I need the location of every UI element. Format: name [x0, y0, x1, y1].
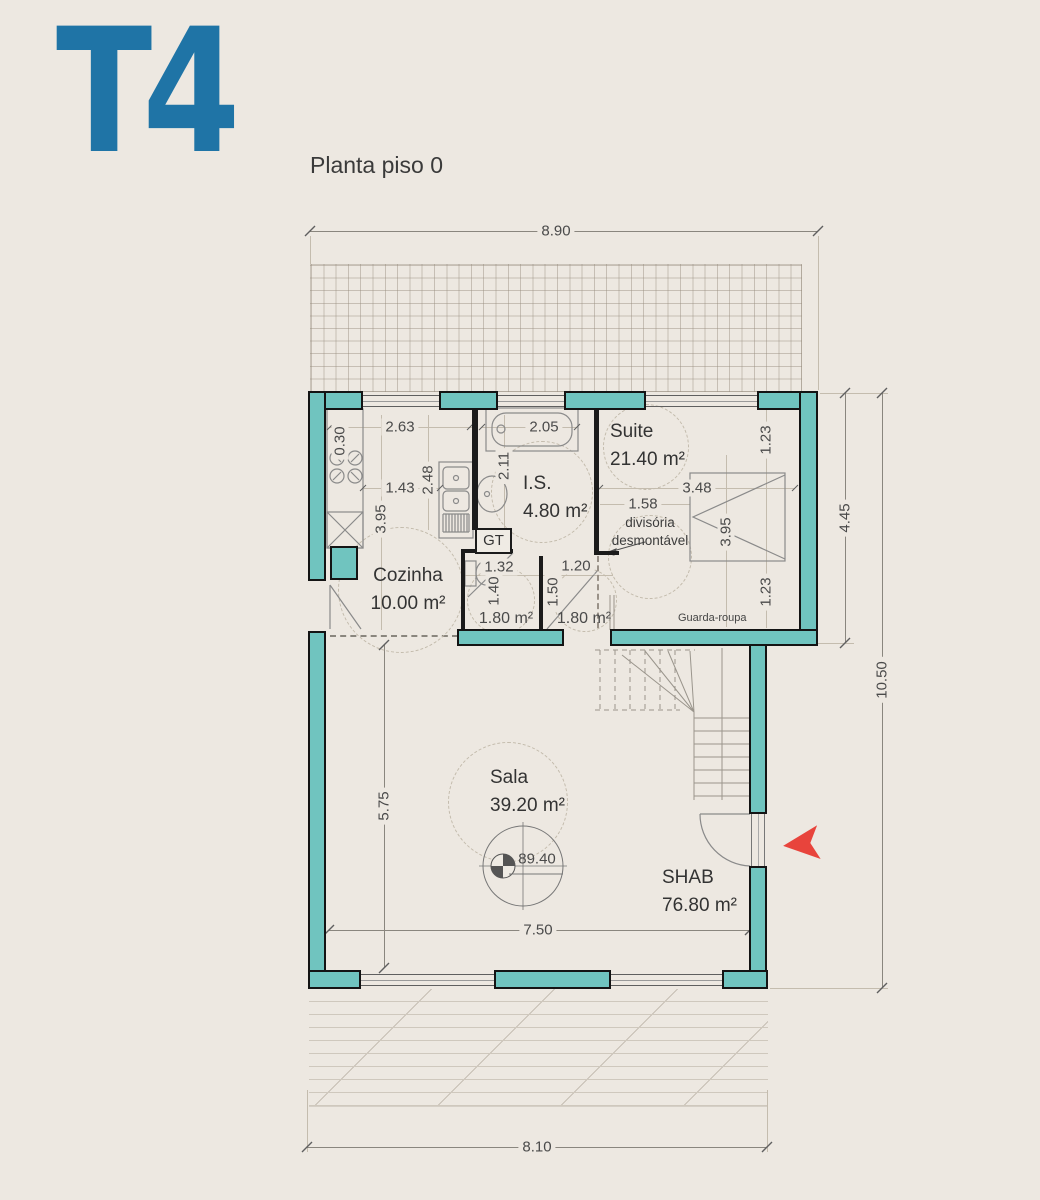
room-label-shab: SHAB 76.80 m²	[662, 864, 737, 919]
dim-kitchen-a: 1.43	[381, 480, 418, 497]
floor-plan-page: T4 Planta piso 0	[0, 0, 1040, 1200]
room-label-is: I.S. 4.80 m²	[523, 470, 587, 525]
wall-right-upper	[799, 391, 818, 631]
sink-drainer-hatch	[443, 514, 469, 532]
level-marker-quadrant	[503, 854, 515, 866]
room-label-sala: Sala 39.20 m²	[490, 764, 565, 819]
dim-hall-width: 1.20	[557, 558, 594, 575]
dim-overall-bottom: 8.10	[518, 1139, 555, 1156]
room-name: Suite	[610, 418, 685, 446]
dim-suite-bottom: 1.23	[758, 573, 775, 610]
wall-top-3	[564, 391, 646, 410]
kitchen-door-leaf	[330, 585, 361, 629]
room-area: 10.00 m²	[371, 590, 446, 618]
window-top-2	[498, 395, 564, 407]
entrance-door-swing	[700, 814, 750, 866]
wall-left-upper	[308, 391, 326, 581]
dim-is-width: 2.05	[525, 419, 562, 436]
sink-basin	[443, 491, 469, 511]
sink-unit	[439, 462, 473, 538]
dim-suite-height: 3.95	[718, 513, 735, 550]
room-label-cozinha: Cozinha 10.00 m²	[371, 562, 446, 617]
dimension-ticks	[302, 226, 887, 1152]
wall-top-2	[439, 391, 498, 410]
room-area: 39.20 m²	[490, 792, 565, 820]
dim-kitchen-width: 2.63	[381, 419, 418, 436]
dim-sala-height: 5.75	[376, 787, 393, 824]
sink-basin	[443, 467, 469, 489]
dim-kitchen-b: 2.48	[420, 461, 437, 498]
room-area: 4.80 m²	[523, 498, 587, 526]
dim-is-height: 2.11	[496, 448, 513, 484]
wall-bottom-2	[494, 970, 611, 989]
guarda-roupa-label: Guarda-roupa	[678, 612, 747, 624]
bathtub-drain	[497, 425, 505, 433]
window-bottom-1	[361, 974, 494, 986]
dim-right-upper: 4.45	[837, 499, 854, 536]
entrance-door-opening	[751, 814, 765, 866]
wc-area-label: 1.80 m²	[475, 610, 537, 628]
divisoria-line2: desmontável	[612, 532, 689, 550]
dim-sala-width: 7.50	[519, 922, 556, 939]
dim-suite-width: 3.48	[678, 480, 715, 497]
window-top-3	[646, 395, 757, 407]
wall-right-lower-a	[749, 644, 767, 814]
dim-kitchen-height: 3.95	[373, 500, 390, 537]
hall-area-label: 1.80 m²	[553, 610, 615, 628]
wall-mid-2	[610, 629, 818, 646]
wall-bottom-3	[722, 970, 768, 989]
wall-kitchen-column	[330, 546, 358, 580]
sink-drain	[454, 476, 459, 481]
gt-duct-box: GT	[475, 528, 512, 554]
divisoria-label: divisória desmontável	[612, 514, 689, 549]
dim-right-total: 10.50	[874, 657, 891, 703]
stair-winder-fan	[622, 651, 694, 712]
dim-kitchen-counter: 0.30	[332, 422, 349, 459]
dim-wc-height: 1.40	[486, 572, 503, 609]
level-marker-quadrant	[491, 866, 503, 878]
window-top-1	[363, 395, 439, 407]
wall-mid-1	[457, 629, 564, 646]
level-label: 89.40	[514, 851, 560, 868]
room-name: Sala	[490, 764, 565, 792]
window-bottom-2	[611, 974, 722, 986]
wall-bottom-1	[308, 970, 361, 989]
counter-cross	[327, 512, 363, 548]
dim-hall-height: 1.50	[545, 573, 562, 610]
room-area: 21.40 m²	[610, 446, 685, 474]
room-name: Cozinha	[371, 562, 446, 590]
plan-drawing-layer	[0, 0, 1040, 1200]
sink-drain	[454, 499, 459, 504]
wall-suite-jamb	[594, 551, 619, 555]
wall-wc-hall-partition	[539, 556, 543, 632]
dim-suite-a: 1.58	[624, 496, 661, 513]
stairs	[595, 648, 749, 800]
wall-left-lower	[308, 631, 326, 989]
wall-wc-left	[461, 551, 465, 633]
wc-cistern	[465, 561, 476, 586]
room-area: 76.80 m²	[662, 892, 737, 920]
room-name: SHAB	[662, 864, 737, 892]
room-label-suite: Suite 21.40 m²	[610, 418, 685, 473]
divisoria-line1: divisória	[612, 514, 689, 532]
wall-kitchen-is	[472, 408, 478, 530]
dim-suite-top: 1.23	[758, 421, 775, 458]
dim-overall-top: 8.90	[537, 223, 574, 240]
room-name: I.S.	[523, 470, 587, 498]
washbasin-tap	[485, 492, 490, 497]
wall-is-suite	[594, 408, 599, 553]
